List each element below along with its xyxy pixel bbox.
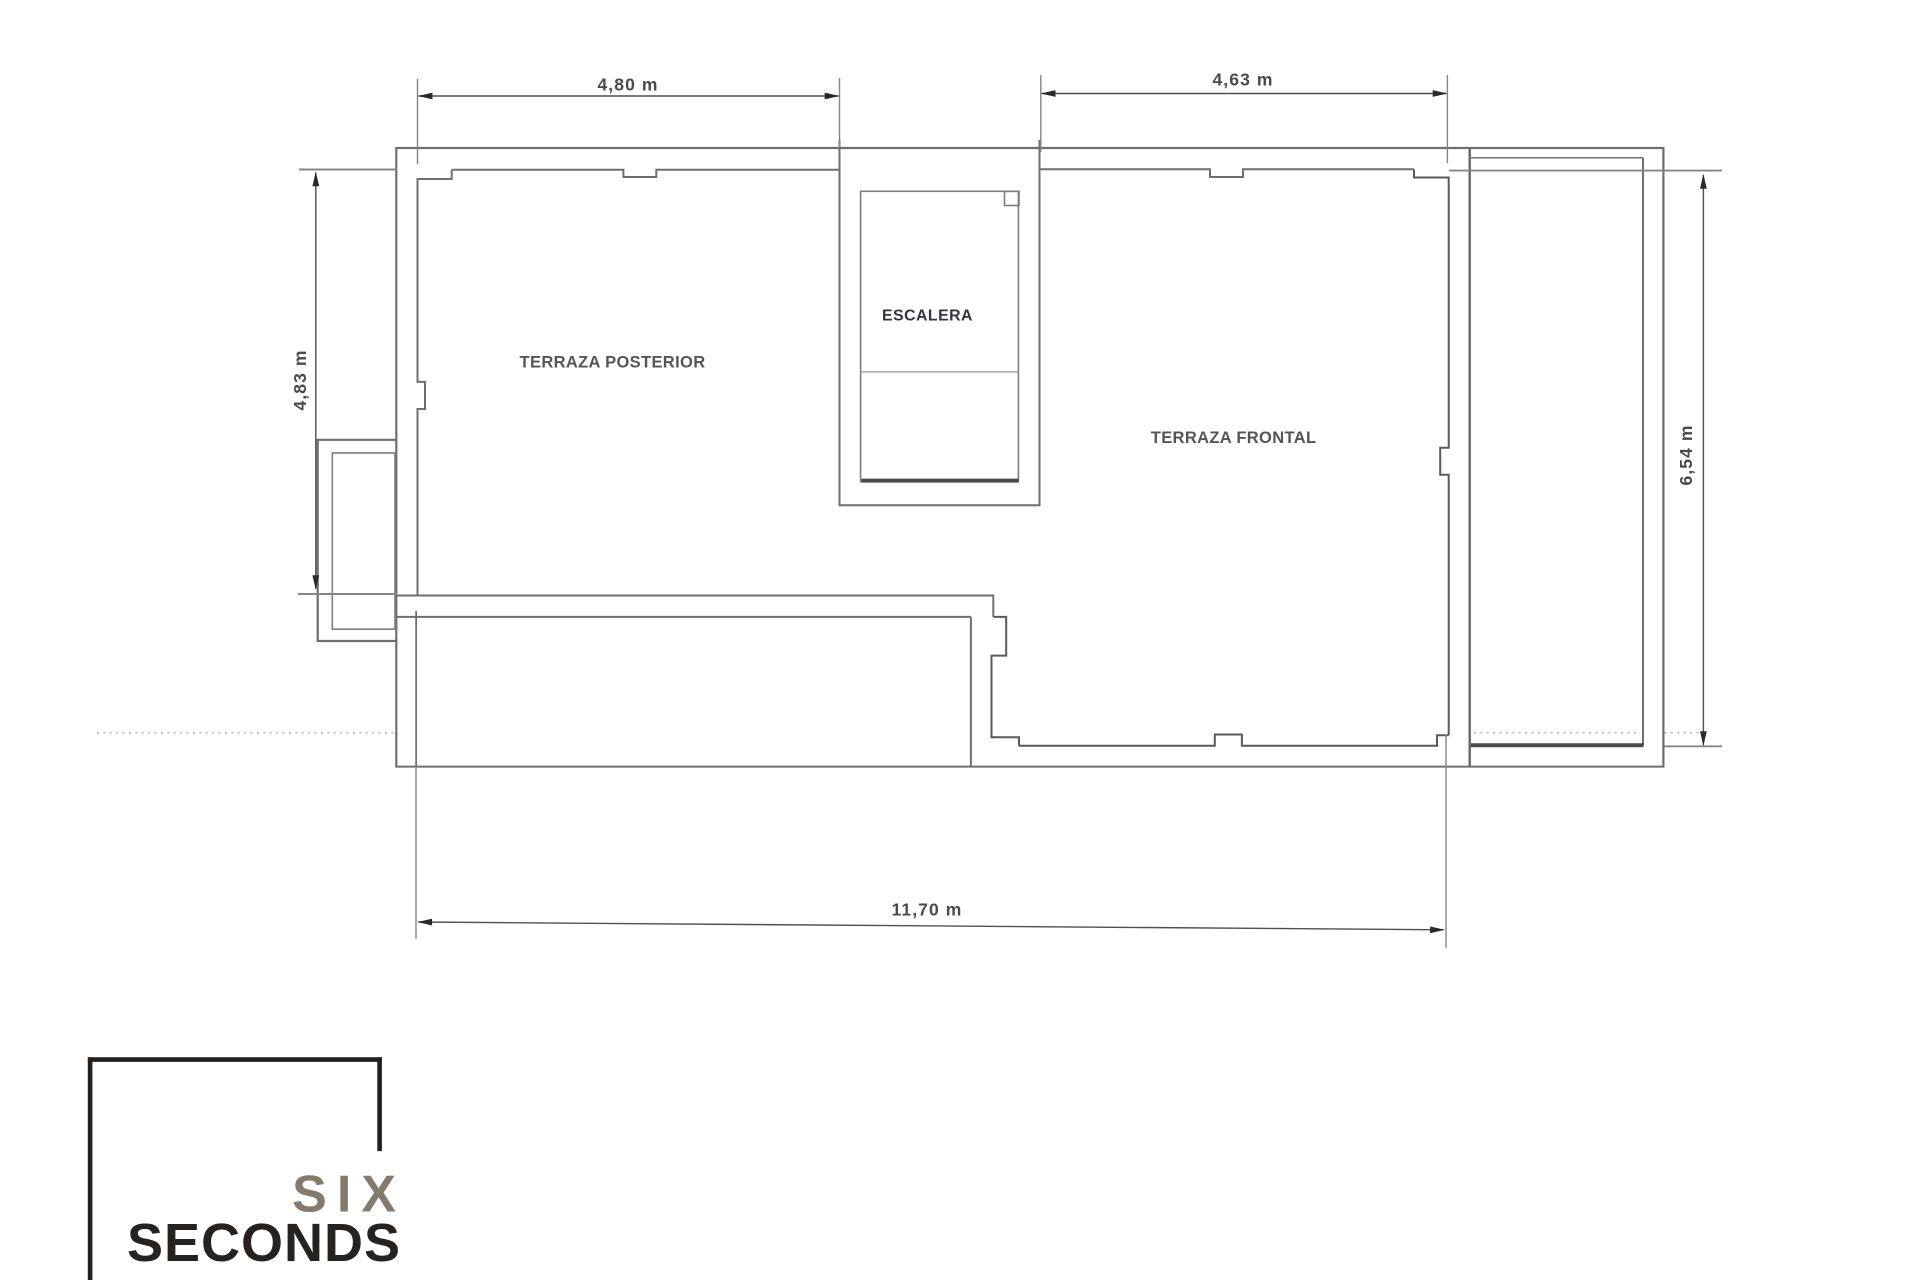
svg-text:4,63 m: 4,63 m [1212,70,1273,90]
svg-text:11,70 m: 11,70 m [892,900,963,920]
svg-text:SECONDS: SECONDS [127,1213,401,1273]
svg-text:6,54 m: 6,54 m [1676,424,1696,485]
svg-text:TERRAZA POSTERIOR: TERRAZA POSTERIOR [520,354,706,372]
svg-text:4,83 m: 4,83 m [290,349,310,410]
svg-text:TERRAZA FRONTAL: TERRAZA FRONTAL [1151,429,1317,447]
svg-text:ESCALERA: ESCALERA [882,308,973,325]
svg-text:4,80 m: 4,80 m [597,75,658,95]
